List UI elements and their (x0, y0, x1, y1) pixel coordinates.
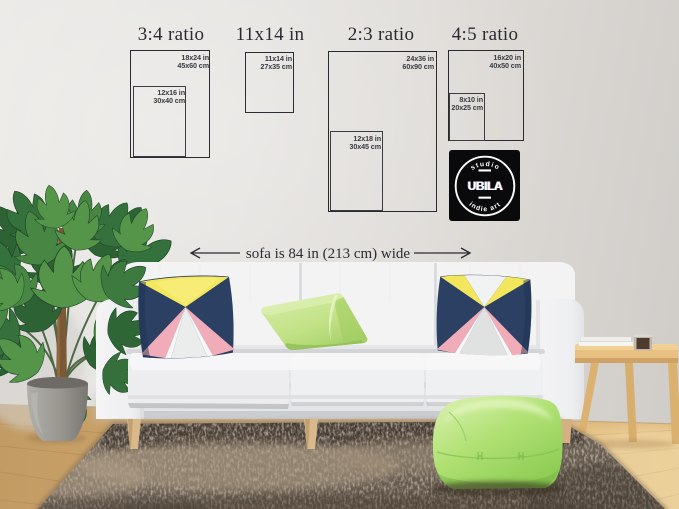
svg-text:sofa is 84 in (213 cm) wide: sofa is 84 in (213 cm) wide (246, 246, 410, 262)
